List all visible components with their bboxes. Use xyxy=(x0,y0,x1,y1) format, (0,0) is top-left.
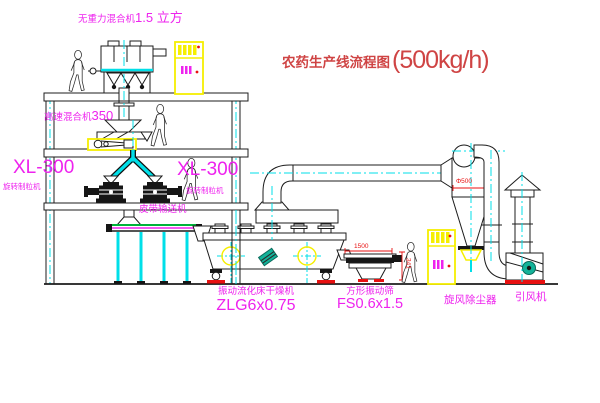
dust-filter-cabinet-right xyxy=(428,230,455,284)
induced-draft-fan xyxy=(505,253,545,284)
granulator-right xyxy=(140,182,182,203)
square-sieve-model: FS0.6x1.5 xyxy=(333,297,407,313)
dust-filter-cabinet-top xyxy=(175,42,203,94)
worker-figure-roof xyxy=(69,50,84,91)
gravity-mixer-size: 1.5 立方 xyxy=(135,10,183,25)
label-fan: 引风机 xyxy=(515,292,547,303)
label-square-sieve: 方形振动筛 FS0.6x1.5 xyxy=(333,287,407,313)
high-speed-mixer-name: 高速混合机 xyxy=(44,112,92,123)
label-belt-conveyor: 皮带输送机 xyxy=(139,205,187,215)
dimension-sieve-height: 341 xyxy=(404,258,411,269)
label-gravity-mixer: 无重力混合机1.5 立方 xyxy=(78,11,183,25)
pesticide-line-flow-diagram: 无重力混合机1.5 立方 农药生产线流程图 (500kg/h) 高速混合机350… xyxy=(0,0,600,403)
diagram-title: 农药生产线流程图 (500kg/h) xyxy=(282,46,489,75)
high-speed-mixer xyxy=(88,120,152,150)
discharge-chute xyxy=(117,210,141,225)
high-speed-mixer-model: 350 xyxy=(92,108,114,123)
worker-figure-floor2 xyxy=(151,104,166,146)
fluid-bed-dryer xyxy=(193,202,353,284)
label-cyclone: 旋风除尘器 xyxy=(444,295,497,306)
label-granulator-left-model: XL-300 xyxy=(13,158,74,177)
dimension-cyclone-diameter: Φ500 xyxy=(456,179,472,186)
label-fluid-bed-dryer: 振动流化床干燥机 ZLG6x0.75 xyxy=(200,287,312,315)
title-text: 农药生产线流程图 xyxy=(282,51,390,71)
label-granulator-right-model: XL-300 xyxy=(177,160,238,179)
belt-conveyor xyxy=(106,224,202,284)
dryer-nozzles xyxy=(212,224,334,233)
gravity-free-mixer xyxy=(88,41,166,101)
fluid-bed-dryer-name: 振动流化床干燥机 xyxy=(200,287,312,297)
vibrating-sieve xyxy=(344,248,405,282)
title-capacity: (500kg/h) xyxy=(392,46,489,75)
label-high-speed-mixer: 高速混合机350 xyxy=(44,109,113,123)
label-granulator-right-name: 旋转制粒机 xyxy=(186,187,224,195)
label-granulator-left-name: 旋转制粒机 xyxy=(3,183,41,191)
granulator-left xyxy=(84,182,126,203)
fluid-bed-dryer-model: ZLG6x0.75 xyxy=(200,297,312,315)
gravity-mixer-name: 无重力混合机 xyxy=(78,14,135,25)
dimension-sieve-length: 1500 xyxy=(354,244,368,251)
dryer-supports xyxy=(207,269,335,284)
